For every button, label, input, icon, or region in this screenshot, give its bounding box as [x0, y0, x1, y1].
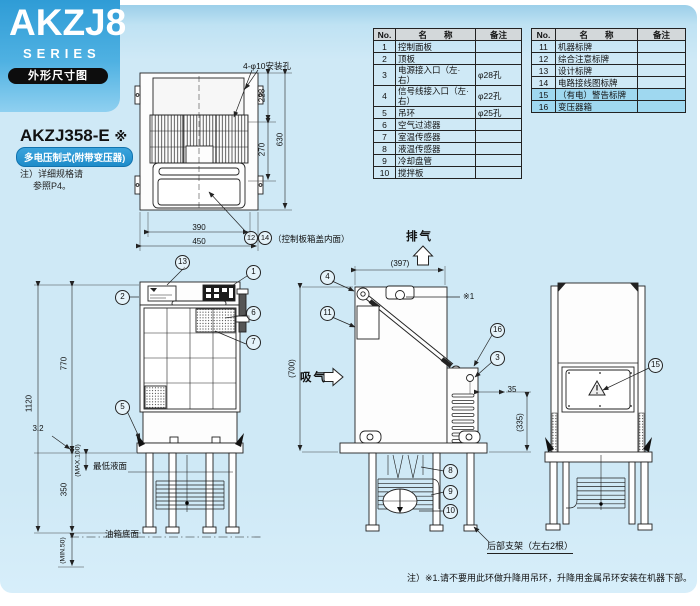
callout-1: 1: [246, 265, 261, 280]
dim-270: 270: [258, 128, 267, 172]
model-type-badge: 多电压制式(附带变压器): [16, 147, 133, 167]
callout-5: 5: [115, 400, 130, 415]
footnote: 注）※1.请不要用此环做升降用吊环，升降用金属吊环安装在机器下部。: [407, 571, 692, 584]
table-row: 13设计标牌: [532, 65, 686, 77]
rear-support-label: 后部支架（左右2根）: [487, 539, 573, 554]
table-cell: [638, 77, 686, 89]
table-cell: 吊环: [396, 107, 476, 119]
table-row: 16变压器箱: [532, 101, 686, 113]
table-cell: 冷却盘管: [396, 155, 476, 167]
brand-logo-box: AKZJ8 SERIES 外形尺寸图: [0, 0, 120, 112]
table-header-cell: No.: [374, 29, 396, 41]
callout-14: 14: [258, 231, 272, 245]
callout-16: 16: [490, 323, 505, 338]
exhaust-label: 排气: [406, 228, 433, 244]
mount-holes-label: 4-φ10安装孔: [243, 60, 291, 72]
dim-397: (397): [378, 259, 422, 268]
dim-700: (700): [288, 347, 297, 391]
table-cell: 变压器箱: [556, 101, 638, 113]
table-cell: 搅拌板: [396, 167, 476, 179]
min-liquid-level-label: 最低液面: [93, 460, 127, 472]
callout-12: 12: [244, 231, 258, 245]
parts-table-left: No.名 称备注1控制面板2顶板3电源接入口（左·右）φ28孔4信号线接入口（左…: [373, 28, 522, 179]
brand-series-name: AKZJ8: [9, 2, 117, 44]
dim-3-2: 3.2: [26, 424, 50, 433]
table-cell: [476, 41, 522, 53]
table-cell: [638, 101, 686, 113]
table-row: 14电路接线图标牌: [532, 77, 686, 89]
ref-mark-1: ※1: [463, 292, 474, 301]
table-cell: [638, 65, 686, 77]
page-tag: 外形尺寸图: [8, 68, 108, 84]
table-row: 7室温传感器: [374, 131, 522, 143]
callout-6: 6: [246, 306, 261, 321]
callout-7: 7: [246, 335, 261, 350]
table-cell: 控制面板: [396, 41, 476, 53]
table-cell: 设计标牌: [556, 65, 638, 77]
dim-390: 390: [177, 223, 221, 232]
dim-35: 35: [502, 385, 522, 394]
table-cell: 室温传感器: [396, 131, 476, 143]
table-cell: [476, 143, 522, 155]
table-cell: 7: [374, 131, 396, 143]
table-cell: 5: [374, 107, 396, 119]
table-row: 4信号线接入口（左·右）φ22孔: [374, 86, 522, 107]
table-row: 1控制面板: [374, 41, 522, 53]
front-view-drawing: [34, 267, 262, 567]
rear-view-drawing: [545, 283, 652, 530]
table-cell: [638, 89, 686, 101]
dim-min-50: (MIN.50): [60, 529, 67, 573]
side-view-drawing: [300, 246, 531, 542]
dim-450: 450: [177, 237, 221, 246]
table-cell: （有电）警告标牌: [556, 89, 638, 101]
table-cell: 1: [374, 41, 396, 53]
table-row: 15（有电）警告标牌: [532, 89, 686, 101]
model-name-text: AKZJ358-E: [20, 126, 110, 145]
spec-note: 注）详细规格请 参照P4。: [20, 168, 83, 192]
table-cell: 6: [374, 119, 396, 131]
dim-335: (335): [516, 401, 525, 445]
table-cell: 13: [532, 65, 556, 77]
table-header-cell: 备注: [638, 29, 686, 41]
table-cell: 空气过滤器: [396, 119, 476, 131]
table-cell: [476, 155, 522, 167]
callout-4: 4: [320, 270, 335, 285]
table-cell: [638, 41, 686, 53]
callout-9: 9: [443, 485, 458, 500]
spec-note-line1: 注）详细规格请: [20, 168, 83, 180]
tank-bottom-label: 油箱底面: [105, 528, 139, 540]
table-cell: 综合注意标牌: [556, 53, 638, 65]
table-cell: 机器标牌: [556, 41, 638, 53]
brand-series-label: SERIES: [23, 46, 101, 61]
table-cell: 10: [374, 167, 396, 179]
table-cell: 9: [374, 155, 396, 167]
table-cell: 12: [532, 53, 556, 65]
callout-8: 8: [443, 464, 458, 479]
table-row: 10搅拌板: [374, 167, 522, 179]
table-header-cell: 名 称: [396, 29, 476, 41]
table-row: 9冷却盘管: [374, 155, 522, 167]
callout-11: 11: [320, 306, 335, 321]
table-cell: φ25孔: [476, 107, 522, 119]
intake-label: 吸气: [300, 369, 327, 385]
parts-table-right: No.名 称备注11机器标牌12综合注意标牌13设计标牌14电路接线图标牌15（…: [531, 28, 686, 113]
table-cell: 4: [374, 86, 396, 107]
table-cell: 15: [532, 89, 556, 101]
table-cell: 11: [532, 41, 556, 53]
table-header-cell: 备注: [476, 29, 522, 41]
table-cell: 电源接入口（左·右）: [396, 65, 476, 86]
table-cell: [476, 119, 522, 131]
callout-3: 3: [490, 351, 505, 366]
table-header-cell: No.: [532, 29, 556, 41]
table-row: 3电源接入口（左·右）φ28孔: [374, 65, 522, 86]
dim-1120: 1120: [25, 382, 34, 426]
dim-630: 630: [276, 118, 285, 162]
table-row: 6空气过滤器: [374, 119, 522, 131]
table-row: 11机器标牌: [532, 41, 686, 53]
table-cell: 2: [374, 53, 396, 65]
table-header-cell: 名 称: [556, 29, 638, 41]
table-cell: 信号线接入口（左·右）: [396, 86, 476, 107]
table-cell: 3: [374, 65, 396, 86]
table-cell: φ22孔: [476, 86, 522, 107]
table-cell: 电路接线图标牌: [556, 77, 638, 89]
table-cell: [638, 53, 686, 65]
callout-10: 10: [443, 504, 458, 519]
table-cell: φ28孔: [476, 65, 522, 86]
callout-15: 15: [648, 358, 663, 373]
table-row: 2顶板: [374, 53, 522, 65]
dim-350: 350: [60, 468, 69, 512]
table-row: 8液温传感器: [374, 143, 522, 155]
table-cell: 14: [532, 77, 556, 89]
table-row: 12综合注意标牌: [532, 53, 686, 65]
table-cell: [476, 53, 522, 65]
model-ref-mark: ※: [115, 129, 128, 144]
callout-2: 2: [115, 290, 130, 305]
table-cell: [476, 131, 522, 143]
dim-max-100: (MAX.100): [75, 439, 82, 483]
page: AKZJ8 SERIES 外形尺寸图 AKZJ358-E ※ 多电压制式(附带变…: [0, 0, 700, 606]
spec-note-line2: 参照P4。: [33, 180, 83, 192]
table-cell: [476, 167, 522, 179]
table-cell: 16: [532, 101, 556, 113]
cover-note-label: （控制板箱盖内面）: [273, 233, 350, 245]
dim-770: 770: [60, 342, 69, 386]
table-cell: 液温传感器: [396, 143, 476, 155]
table-cell: 8: [374, 143, 396, 155]
callout-13: 13: [175, 255, 190, 270]
table-row: 5吊环φ25孔: [374, 107, 522, 119]
dim-228: 228: [258, 74, 267, 118]
model-name: AKZJ358-E ※: [20, 126, 127, 146]
table-cell: 顶板: [396, 53, 476, 65]
